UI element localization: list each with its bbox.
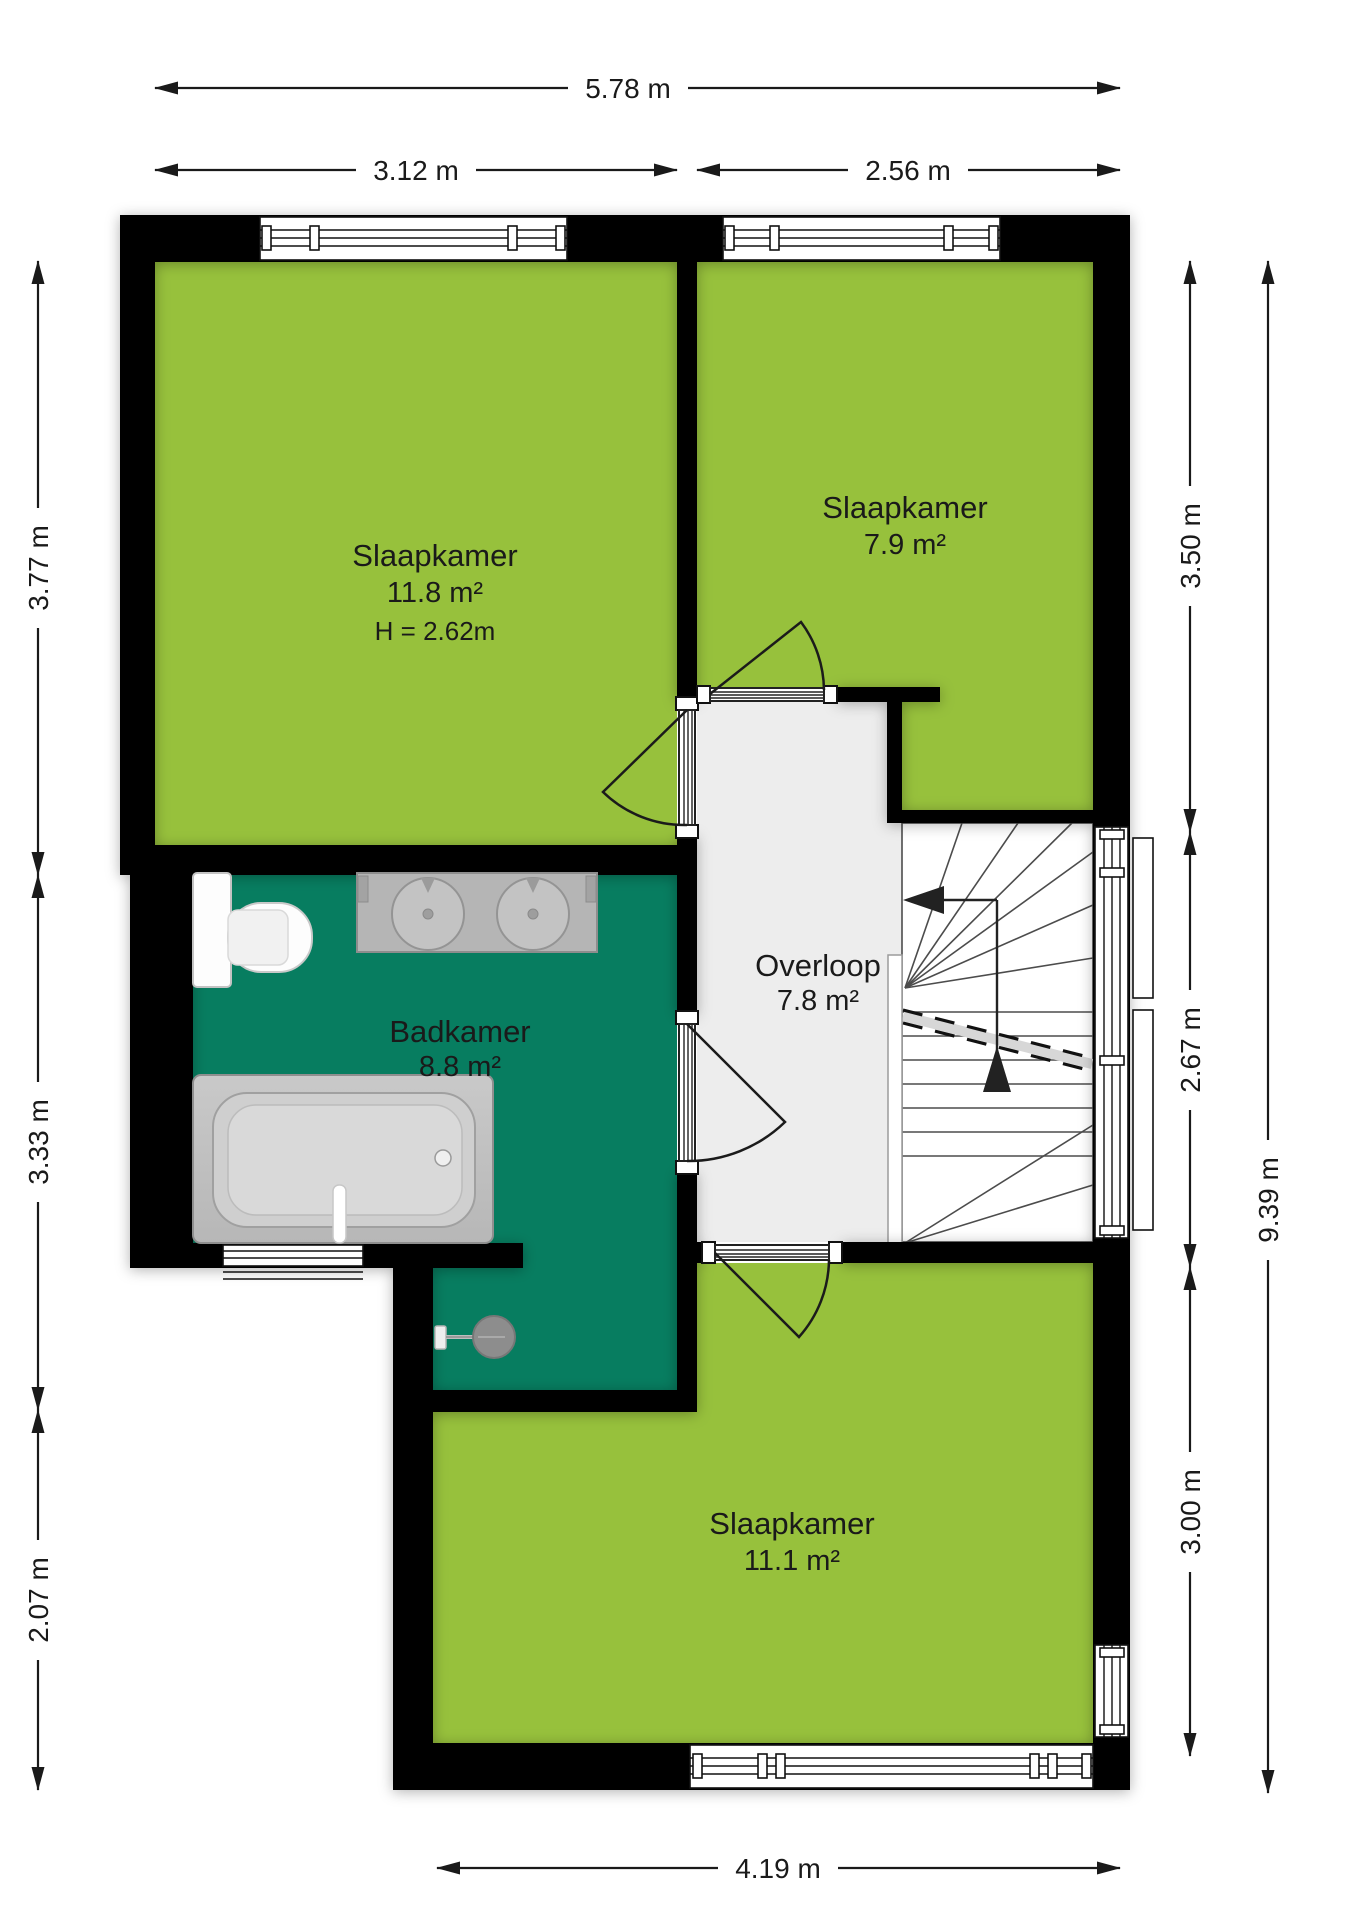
room-area: 7.8 m² [777,985,860,1017]
washbasin-right [497,878,569,950]
room-area: 11.8 m² [387,577,484,609]
floor-plan-page: Slaapkamer 11.8 m² H = 2.62m Slaapkamer … [0,0,1358,1920]
window-top-right [723,217,1000,260]
dimension-label: 2.07 m [23,1557,54,1643]
dimension-label: 5.78 m [585,73,671,104]
dimension-right-middle: 2.67 m [1172,832,1208,1267]
floor-plan: Slaapkamer 11.8 m² H = 2.62m Slaapkamer … [0,0,1358,1920]
dimension-right-top: 3.50 m [1172,261,1208,832]
window-bottom [690,1745,1093,1788]
bathtub-drain [435,1150,451,1166]
room-name: Slaapkamer [822,490,987,525]
room-floors [155,262,1093,1743]
dimension-label: 2.56 m [865,155,951,186]
dimension-label: 3.77 m [23,525,54,611]
dimension-right-bottom: 3.00 m [1172,1267,1208,1756]
room-area: 7.9 m² [864,529,947,561]
dimension-bottom: 4.19 m [437,1850,1120,1886]
stairs-stringer [888,955,902,1243]
bathtub [193,1075,493,1243]
dimension-label: 4.19 m [735,1853,821,1884]
dimension-label: 3.33 m [23,1099,54,1185]
room-name: Slaapkamer [352,538,517,573]
bathtub-grab-bar [333,1185,346,1243]
room-name: Overloop [755,948,881,983]
dimension-top-left: 3.12 m [155,152,677,188]
room-height-note: H = 2.62m [375,616,496,646]
dimension-top-total: 5.78 m [155,70,1120,106]
room-name: Slaapkamer [709,1506,874,1541]
room-area: 8.8 m² [419,1051,502,1083]
dimension-label: 3.00 m [1175,1469,1206,1555]
window-bedroom3-right [1095,1645,1128,1737]
dimension-left-middle: 3.33 m [20,875,56,1410]
dimension-left-bottom: 2.07 m [20,1410,56,1790]
washbasin-left [392,878,464,950]
dimension-label: 3.12 m [373,155,459,186]
window-bathroom [223,1245,363,1279]
room-name: Badkamer [389,1014,530,1049]
washbasin-counter [357,873,597,952]
dimension-label: 3.50 m [1175,503,1206,589]
window-stairwell [1095,827,1153,1238]
room-area: 11.1 m² [744,1545,841,1577]
dimension-left-top: 3.77 m [20,261,56,875]
dimension-label: 2.67 m [1175,1007,1206,1093]
dimension-top-right: 2.56 m [697,152,1120,188]
window-top-left [260,217,567,260]
dimension-right-total: 9.39 m [1250,261,1286,1793]
dimension-label: 9.39 m [1253,1157,1284,1243]
